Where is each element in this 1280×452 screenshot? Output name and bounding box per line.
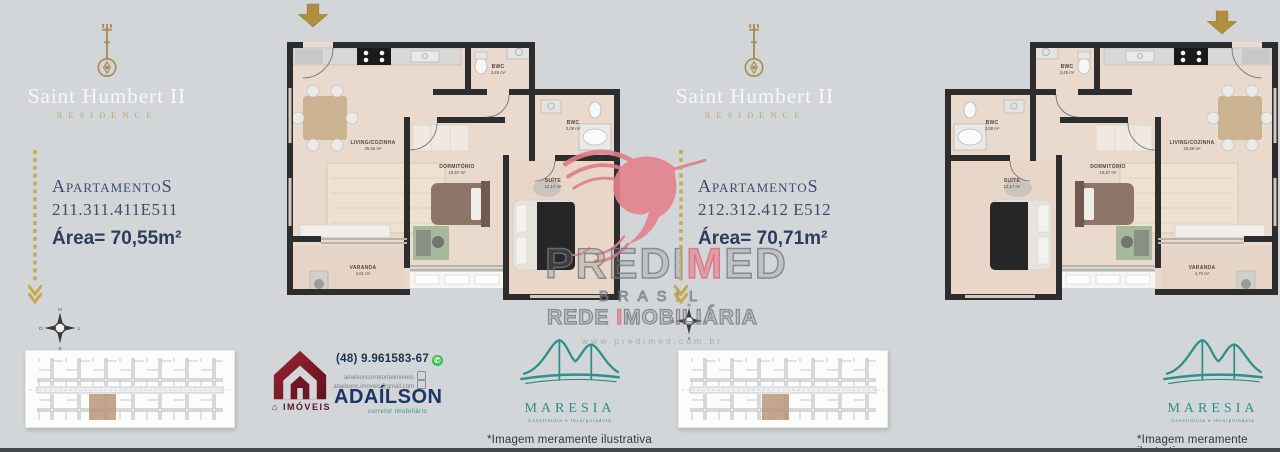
room-label-bwc1: BWC3,49 m² (491, 64, 506, 76)
bridge-logo-icon (1153, 333, 1273, 395)
building-overview-plan (678, 350, 888, 428)
svg-text:L: L (78, 326, 81, 332)
builder-name: MARESIA (495, 401, 645, 417)
compass-icon: N S L O (38, 306, 82, 350)
left-apartment-info: ApartamentoS 211.311.411E511 Área= 70,55… (52, 176, 181, 250)
compass-icon: N S L O (670, 302, 708, 340)
svg-text:O: O (39, 326, 43, 332)
builder-tagline: Construtora e Incorporadora (1138, 418, 1280, 423)
dashed-arrow-icon (674, 148, 688, 306)
imoveis-label: ⌂ IMÓVEIS (272, 402, 331, 412)
bottom-edge-bar (0, 448, 1280, 452)
project-title: Saint Humbert II (670, 84, 840, 109)
entry-arrow-icon (297, 3, 329, 28)
project-subtitle: RESIDENCE (670, 110, 840, 120)
instagram-icon (417, 371, 426, 380)
project-subtitle: RESIDENCE (22, 110, 192, 120)
house-logo-icon (268, 347, 332, 403)
room-label-suite: SUÍTE12,17 m² (1004, 178, 1021, 190)
room-label-living: LIVING/COZINHA25,66 m² (350, 140, 395, 152)
dashed-arrow-icon (28, 148, 42, 306)
room-label-bwc1: BWC3,49 m² (1060, 64, 1075, 76)
apartments-label: ApartamentoS (52, 176, 181, 197)
realtor-phone: (48) 9.961583-67✆ (336, 353, 443, 366)
highlighted-unit (762, 394, 789, 420)
room-label-varanda: VARANDA4,81 m² (350, 265, 377, 277)
right-floorplan: LIVING/COZINHA25,66 m² BWC3,49 m² BWC3,0… (935, 28, 1280, 313)
entry-arrow-icon (1206, 10, 1238, 35)
svg-text:N: N (58, 307, 62, 313)
builder-logo: MARESIA Construtora e Incorporadora (1138, 333, 1280, 423)
svg-text:L: L (704, 319, 707, 324)
realtor-block: ⌂ IMÓVEIS (48) 9.961583-67✆ adailsoncorr… (268, 345, 448, 431)
realtor-name: ADAÍLSON (334, 386, 442, 409)
left-disclaimer: *Imagem meramente ilustrativa (487, 434, 652, 446)
room-label-varanda: VARANDA4,70 m² (1189, 265, 1216, 277)
svg-text:O: O (671, 319, 675, 324)
highlighted-unit (89, 394, 116, 420)
builder-logo: MARESIA Construtora e Incorporadora (495, 333, 645, 423)
room-label-living: LIVING/COZINHA25,66 m² (1169, 140, 1214, 152)
whatsapp-icon: ✆ (432, 355, 443, 366)
project-title: Saint Humbert II (22, 84, 192, 109)
svg-text:S: S (688, 336, 691, 340)
builder-name: MARESIA (1138, 401, 1280, 417)
apartment-area: Área= 70,55m² (52, 228, 181, 250)
building-overview-plan (25, 350, 235, 428)
bridge-logo-icon (510, 333, 630, 395)
builder-tagline: Construtora e Incorporadora (495, 418, 645, 423)
apartment-numbers: 211.311.411E511 (52, 200, 181, 220)
realtor-tagline: corretor imobiliário (368, 409, 427, 415)
key-icon (742, 22, 766, 80)
room-label-dorm: DORMITÓRIO10,57 m² (439, 164, 475, 176)
room-label-bwc2: BWC3,08 m² (985, 120, 1000, 132)
hummingbird-icon (555, 140, 720, 275)
room-label-bwc2: BWC3,08 m² (566, 120, 581, 132)
room-label-dorm: DORMITÓRIO10,57 m² (1090, 164, 1126, 176)
flyer: Saint Humbert II RESIDENCE ApartamentoS … (0, 0, 1280, 452)
key-icon (95, 22, 119, 80)
